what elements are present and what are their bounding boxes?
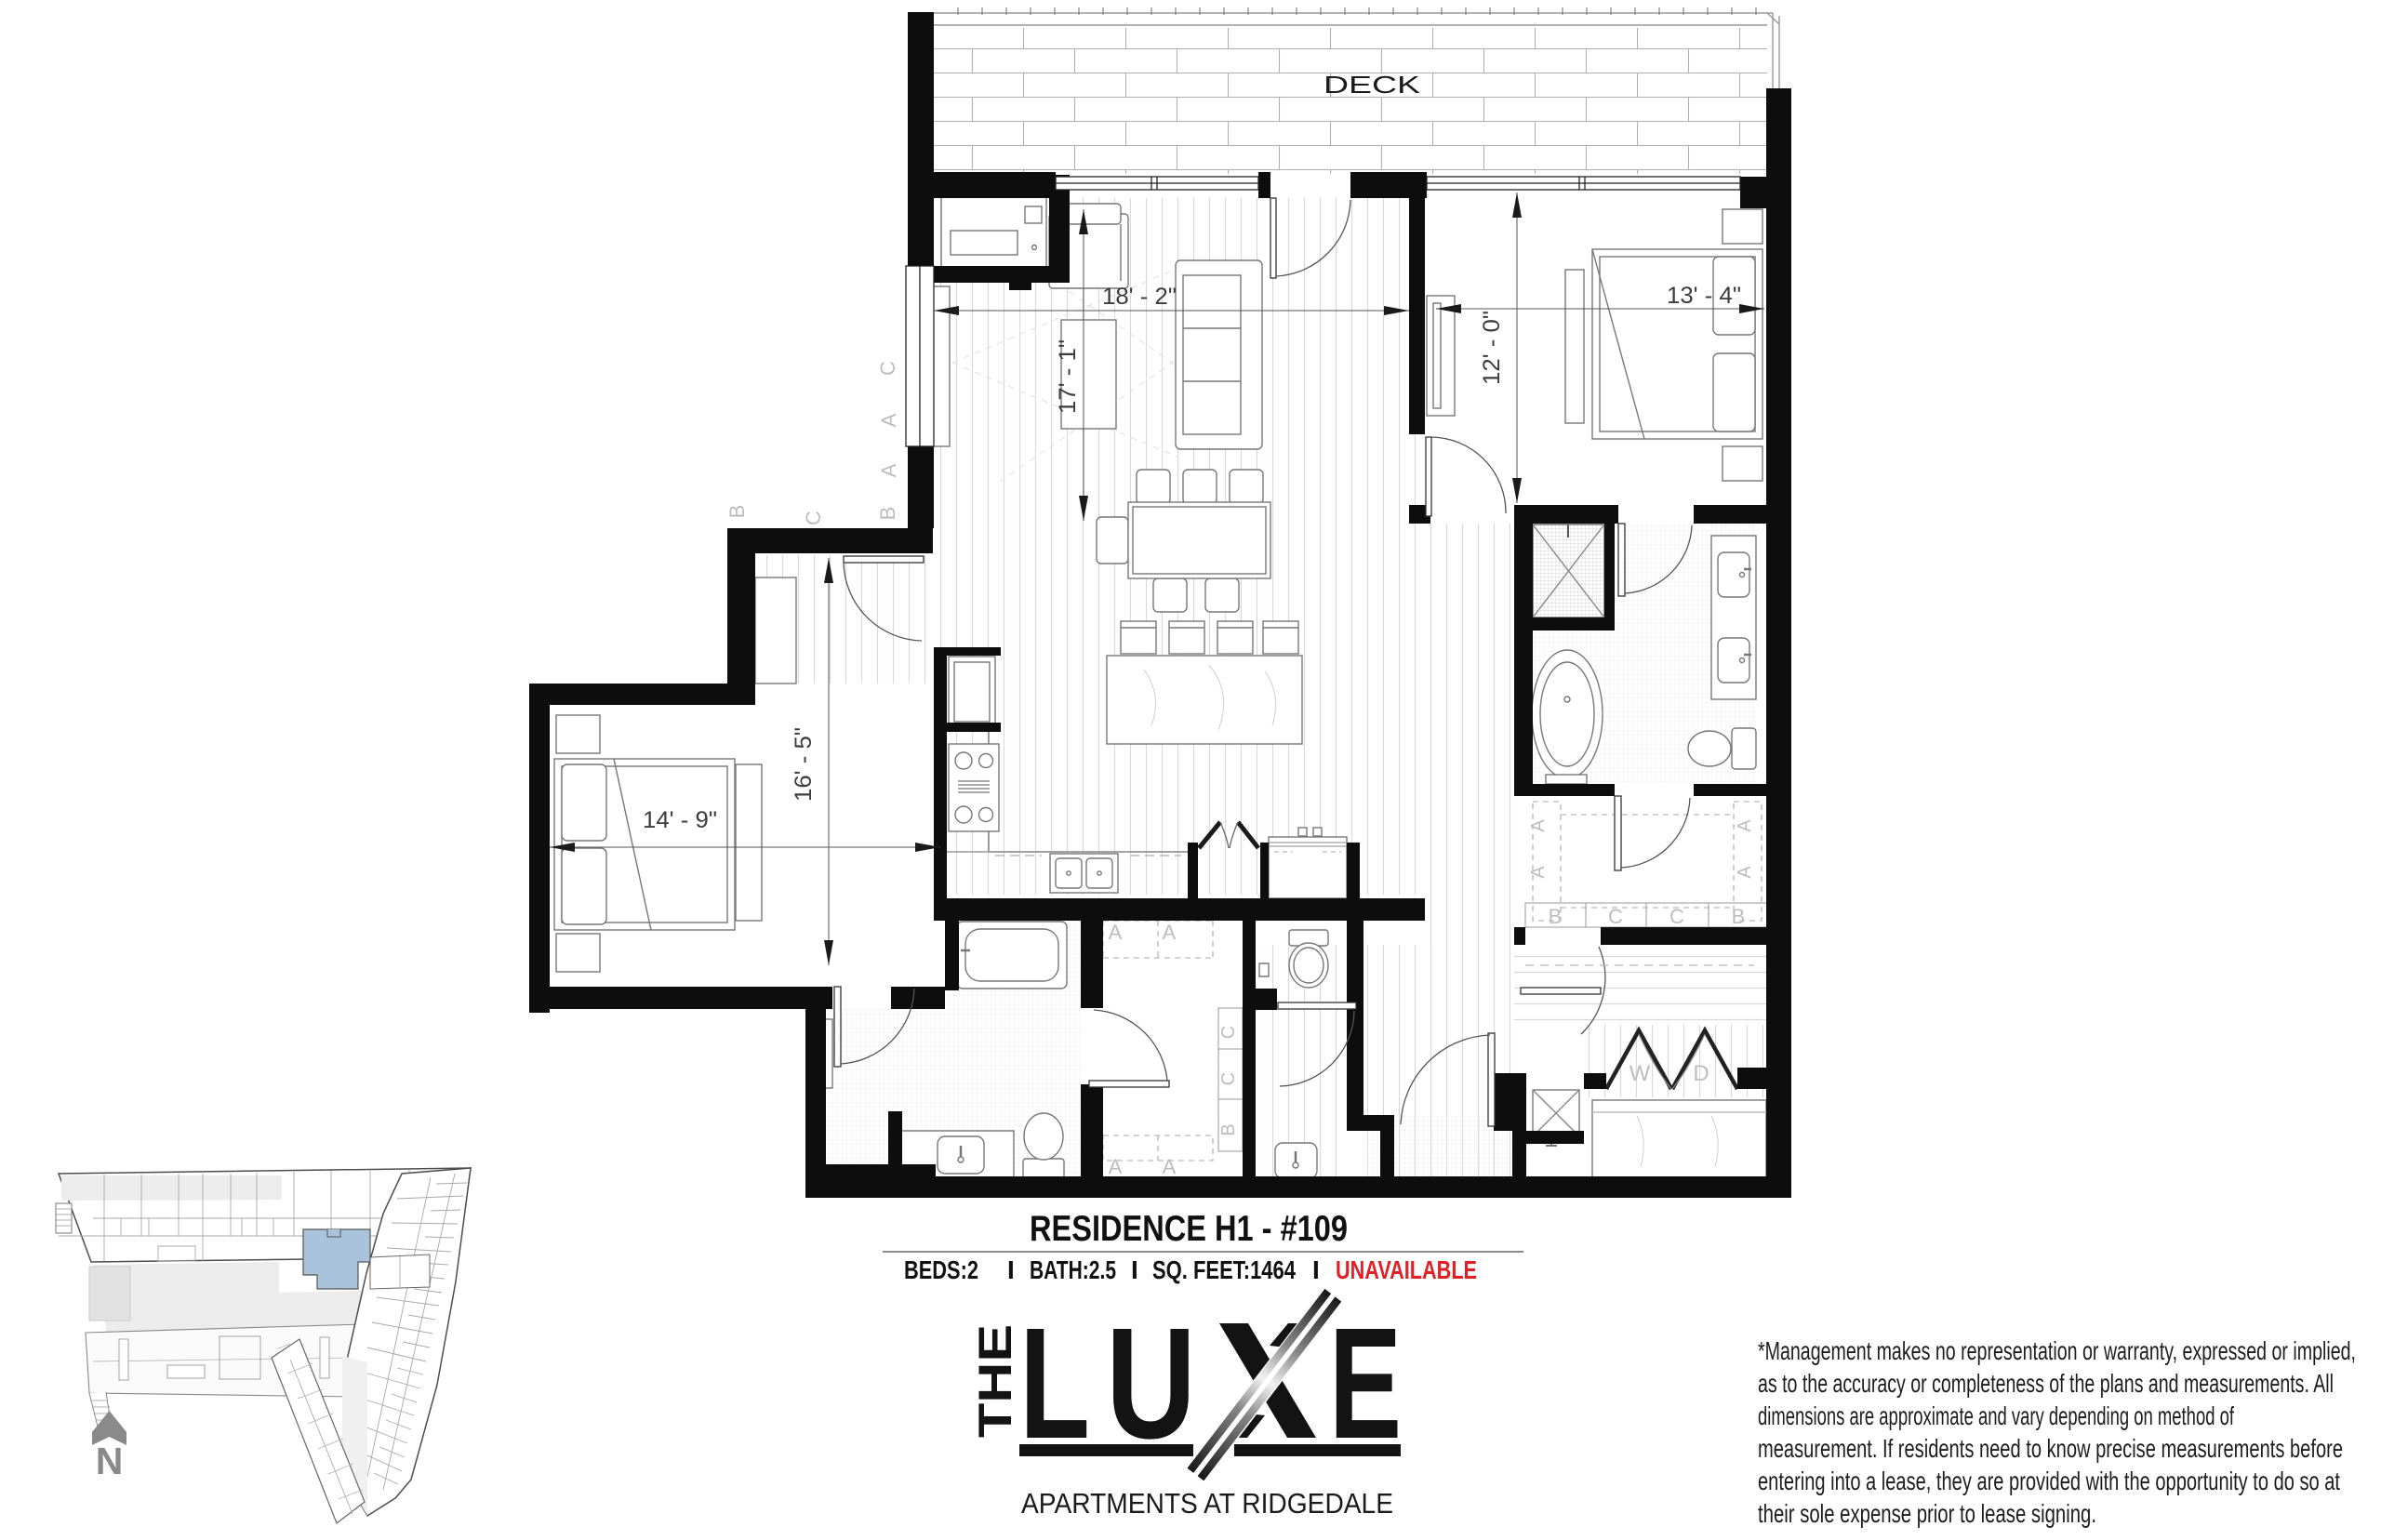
svg-text:A: A <box>877 413 900 427</box>
svg-text:B: B <box>876 507 899 521</box>
svg-text:17' - 1": 17' - 1" <box>1055 339 1081 414</box>
svg-text:A: A <box>1109 921 1123 944</box>
svg-text:A: A <box>1735 866 1755 879</box>
svg-text:*Management makes no represent: *Management makes no representation or w… <box>1758 1336 2356 1365</box>
svg-text:13' - 4": 13' - 4" <box>1667 283 1741 309</box>
svg-text:measurement. If residents need: measurement. If residents need to know p… <box>1758 1434 2343 1463</box>
svg-text:C: C <box>1218 1072 1239 1085</box>
svg-text:C: C <box>1669 905 1684 928</box>
svg-text:A: A <box>877 463 900 477</box>
svg-text:their sole expense prior to le: their sole expense prior to lease signin… <box>1758 1499 2096 1528</box>
svg-text:12' - 0": 12' - 0" <box>1479 311 1505 385</box>
svg-text:16' - 5": 16' - 5" <box>791 727 817 802</box>
svg-text:C: C <box>1218 1026 1239 1039</box>
svg-text:N: N <box>96 1440 124 1482</box>
svg-text:14' - 9": 14' - 9" <box>643 807 717 833</box>
svg-text:SQ. FEET:1464: SQ. FEET:1464 <box>1152 1255 1296 1284</box>
svg-text:C: C <box>802 511 825 525</box>
svg-text:W: W <box>1629 1061 1651 1086</box>
svg-text:I: I <box>1131 1255 1138 1284</box>
svg-text:entering into a lease, they ar: entering into a lease, they are provided… <box>1758 1467 2340 1495</box>
svg-text:UNAVAILABLE: UNAVAILABLE <box>1336 1255 1477 1284</box>
svg-text:THE: THE <box>969 1324 1021 1438</box>
svg-text:BEDS:2: BEDS:2 <box>904 1255 978 1284</box>
svg-text:18' - 2": 18' - 2" <box>1102 284 1177 310</box>
svg-text:D: D <box>1693 1061 1709 1086</box>
svg-text:A: A <box>1735 819 1755 832</box>
svg-text:APARTMENTS AT RIDGEDALE: APARTMENTS AT RIDGEDALE <box>1021 1487 1393 1520</box>
svg-text:RESIDENCE H1 - #109: RESIDENCE H1 - #109 <box>1030 1209 1348 1249</box>
svg-text:C: C <box>1608 905 1623 928</box>
svg-text:I: I <box>1007 1255 1015 1284</box>
svg-text:A: A <box>1109 1155 1123 1178</box>
svg-text:B: B <box>725 505 749 519</box>
svg-text:A: A <box>1163 921 1177 944</box>
svg-text:as to the accuracy or complete: as to the accuracy or completeness of th… <box>1758 1369 2334 1398</box>
svg-text:C: C <box>876 361 899 376</box>
svg-text:dimensions are approximate and: dimensions are approximate and vary depe… <box>1758 1401 2234 1430</box>
svg-text:A: A <box>1163 1155 1177 1178</box>
svg-text:A: A <box>1528 819 1549 832</box>
svg-text:I: I <box>1312 1255 1320 1284</box>
svg-text:B: B <box>1732 905 1746 928</box>
svg-text:BATH:2.5: BATH:2.5 <box>1030 1255 1116 1284</box>
svg-text:A: A <box>1528 866 1549 879</box>
svg-text:B: B <box>1218 1123 1239 1135</box>
svg-text:B: B <box>1549 905 1563 928</box>
svg-text:DECK: DECK <box>1324 71 1421 99</box>
